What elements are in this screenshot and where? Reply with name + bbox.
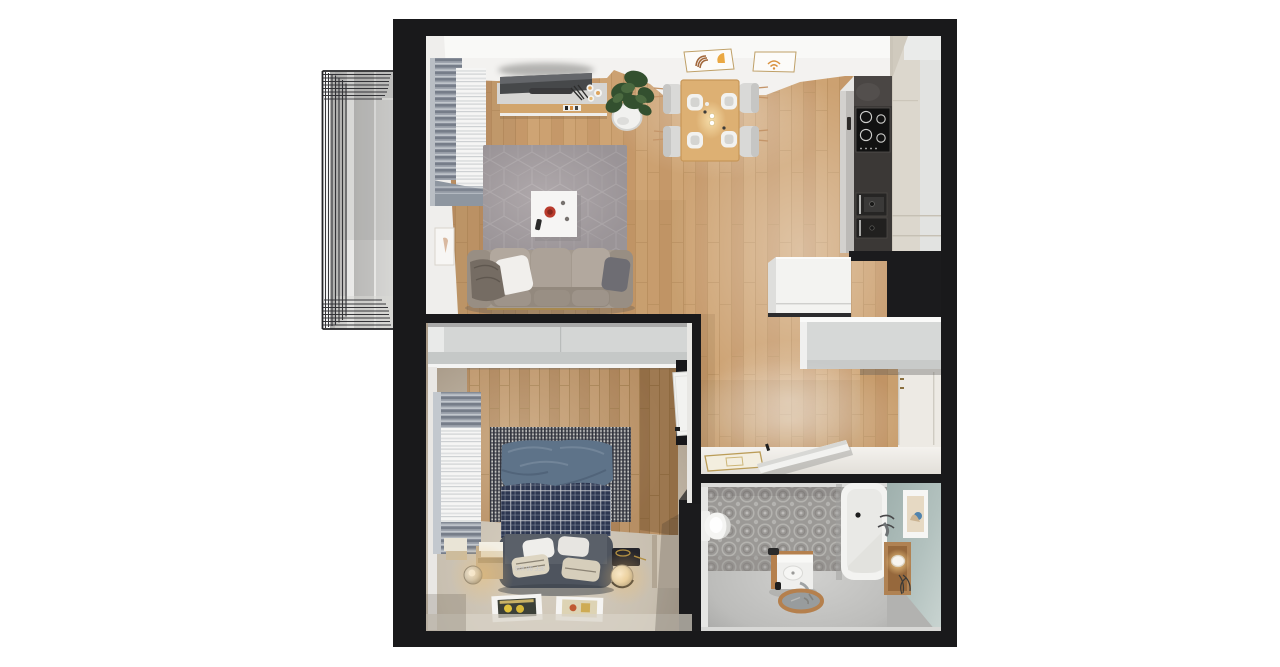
svg-text:3FF 96 WB: 3FF 96 WB xyxy=(515,564,545,570)
